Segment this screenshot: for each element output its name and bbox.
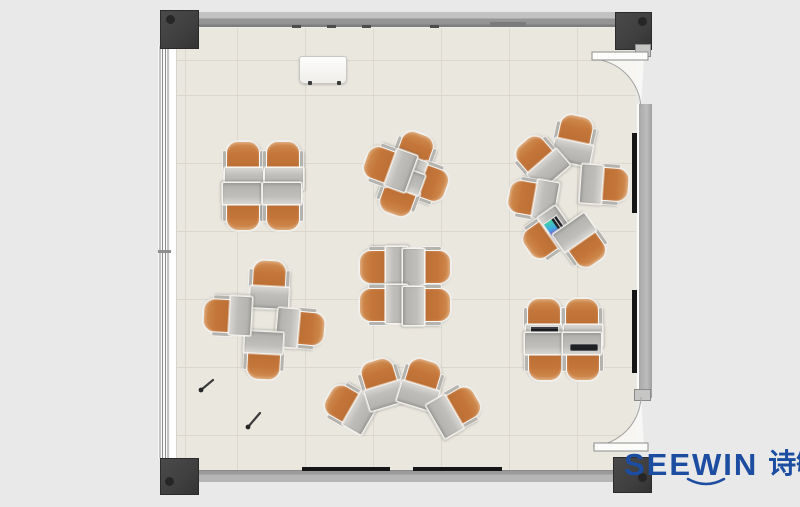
desk-chair-unit [244, 331, 284, 381]
wall-trim [302, 467, 390, 471]
desk [222, 182, 262, 205]
desk-chair-unit [202, 296, 252, 336]
desk [402, 286, 425, 326]
brand-logo-text: SEEWIN [624, 449, 758, 480]
desk-chair-unit [249, 259, 289, 309]
closedlaptop-item [571, 345, 597, 350]
desk [524, 332, 564, 355]
floor-plan: SEEWIN 诗敏 [0, 0, 800, 507]
desk-chair-unit [359, 286, 407, 324]
desk-chair-unit [403, 248, 451, 286]
desk [579, 163, 605, 205]
right-wall [637, 104, 652, 398]
flipchart-foot [308, 81, 312, 85]
bottom-wall [197, 470, 613, 482]
desk-chair-unit [580, 163, 631, 204]
desk [249, 285, 290, 310]
wall-mark [327, 25, 336, 28]
desk [562, 332, 602, 355]
wall-mark [490, 22, 526, 27]
desk-chair-unit [264, 183, 302, 231]
wall-mark [430, 25, 439, 28]
desk-chair-unit [564, 333, 602, 381]
wall-mounted-screen [632, 290, 637, 373]
wall-trim [413, 467, 502, 471]
door-frame-bottom [634, 389, 651, 401]
brand-logo: SEEWIN 诗敏 [624, 449, 800, 480]
flipchart-board [299, 56, 347, 84]
wall-mounted-screen [632, 133, 637, 213]
desk-chair-unit [224, 183, 262, 231]
desk-chair-unit [359, 248, 407, 286]
flipchart-foot [337, 81, 341, 85]
desk [228, 295, 253, 336]
brand-logo-chinese: 诗敏 [768, 449, 800, 478]
desk-chair-unit [403, 286, 451, 324]
desk [262, 182, 302, 205]
wall-mark [362, 25, 371, 28]
column-top-left [160, 10, 199, 49]
window-mullion [158, 250, 171, 253]
desk [402, 248, 425, 288]
desk-chair-unit [526, 333, 564, 381]
wall-mark [292, 25, 301, 28]
door-frame-top [635, 44, 651, 57]
top-wall [197, 12, 615, 28]
column-bottom-left [160, 458, 199, 495]
